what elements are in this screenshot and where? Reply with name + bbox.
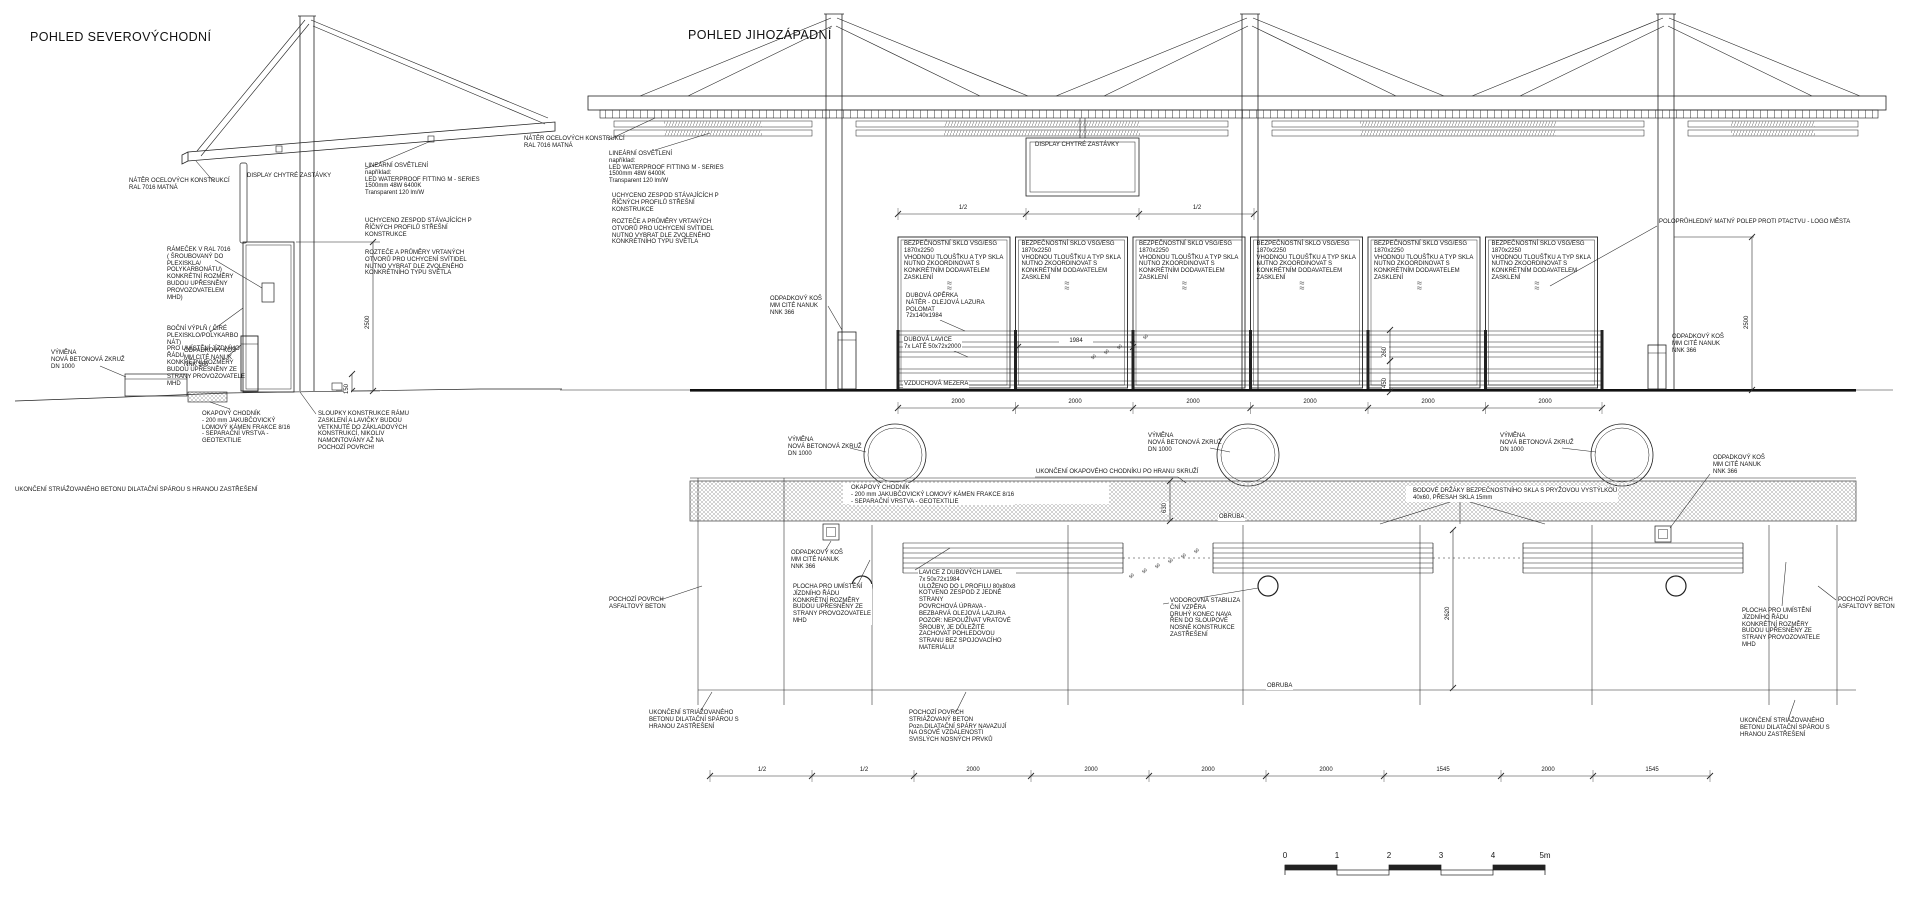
glass-symbol-icon: ≈ ≈: [1300, 281, 1305, 291]
annotation-label: 50: [1128, 572, 1135, 579]
glass-panel-note: BEZPEČNOSTNÍ SKLO VSG/ESG 1870x2250 VHOD…: [904, 241, 1004, 282]
annotation-label: 50: [1103, 348, 1110, 355]
annotation-label: 50: [1142, 333, 1149, 340]
dimension-label: 2000: [1191, 767, 1225, 774]
dimension-label: 2620: [1445, 606, 1452, 621]
scale-bar-tick: 2: [1381, 851, 1397, 860]
note-trash-bin-plan: ODPADKOVÝ KOŠ MM CITÉ NANUK NNK 366: [790, 550, 844, 570]
glass-panel-note: BEZPEČNOSTNÍ SKLO VSG/ESG 1870x2250 VHOD…: [1139, 241, 1239, 282]
view-title-southwest: POHLED JIHOZÁPADNÍ: [688, 28, 832, 42]
dimension-label: 2500: [365, 315, 372, 330]
note-smart-display-ne: DISPLAY CHYTRÉ ZASTÁVKY: [247, 173, 331, 180]
blueprint-canvas: POHLED SEVEROVÝCHODNÍ POHLED JIHOZÁPADNÍ: [0, 0, 1920, 905]
annotation-label: 50: [1167, 557, 1174, 564]
dimension-label: 2000: [1411, 399, 1445, 406]
note-concrete-edge-sw-right: UKONČENÍ STRIÁŽOVANÉHO BETONU DILATAČNÍ …: [1740, 718, 1830, 738]
glass-panel-note: BEZPEČNOSTNÍ SKLO VSG/ESG 1870x2250 VHOD…: [1022, 241, 1122, 282]
dimension-label: 1/2: [847, 767, 881, 774]
annotation-label: 50: [1129, 338, 1136, 345]
dimension-label: 1/2: [745, 767, 779, 774]
note-concrete-ring-ne: VÝMĚNA NOVÁ BETONOVÁ ZKRUŽ DN 1000: [51, 350, 125, 370]
note-asphalt-right: POCHOZÍ POVRCH ASFALTOVÝ BETON: [1838, 597, 1895, 611]
annotation-layer: NÁTĚR OCELOVÝCH KONSTRUKCÍ RAL 7016 MATN…: [0, 0, 1920, 905]
note-walk-end: UKONČENÍ OKAPOVÉHO CHODNÍKU PO HRANU SKR…: [1035, 469, 1199, 476]
glass-symbol-icon: ≈ ≈: [1535, 281, 1540, 291]
dimension-label: 2000: [1058, 399, 1092, 406]
note-fixing-sw: UCHYCENO ZESPOD STÁVAJÍCÍCH P ŘÍČNÝCH PR…: [612, 193, 719, 213]
glass-symbol-icon: ≈ ≈: [1182, 281, 1187, 291]
note-steel-paint-ne: NÁTĚR OCELOVÝCH KONSTRUKCÍ RAL 7016 MATN…: [129, 178, 230, 192]
dimension-label: 2000: [1309, 767, 1343, 774]
note-smart-display-sw: DISPLAY CHYTRÉ ZASTÁVKY: [1035, 142, 1119, 149]
glass-symbol-icon: ≈ ≈: [1065, 281, 1070, 291]
note-drill-holes-ne: ROZTEČE A PRŮMĚRY VRTANÝCH OTVORŮ PRO UC…: [365, 250, 467, 277]
note-drip-walk-ne: OKAPOVÝ CHODNÍK - 200 mm JAKUBČOVICKÝ LO…: [202, 411, 290, 445]
glass-panel-note: BEZPEČNOSTNÍ SKLO VSG/ESG 1870x2250 VHOD…: [1374, 241, 1474, 282]
note-timetable-right: PLOCHA PRO UMÍSTĚNÍ JÍZDNÍHO ŘÁDU KONKRÉ…: [1742, 608, 1820, 649]
dimension-label: 1984: [1059, 338, 1093, 345]
note-linear-light-ne: LINEÁRNÍ OSVĚTLENÍ například: LED WATERP…: [365, 163, 480, 197]
note-striated-concrete: POCHOZÍ POVRCH STRIÁŽOVANÝ BETON Pozn.DI…: [909, 710, 1006, 744]
note-timetable-left: PLOCHA PRO UMÍSTĚNÍ JÍZDNÍHO ŘÁDU KONKRÉ…: [792, 584, 872, 625]
note-curb-1: OBRUBA: [1218, 514, 1245, 521]
note-drill-holes-sw: ROZTEČE A PRŮMĚRY VRTANÝCH OTVORŮ PRO UC…: [612, 219, 714, 246]
note-curb-2: OBRUBA: [1266, 683, 1293, 690]
scale-bar-tick: 5m: [1537, 851, 1553, 860]
scale-bar-tick: 4: [1485, 851, 1501, 860]
dimension-label: 2000: [941, 399, 975, 406]
note-frame-ne: RÁMEČEK V RAL 7016 ( ŠROUBOVANÝ DO PLEXI…: [167, 247, 234, 302]
dimension-label: 1/2: [1180, 205, 1214, 212]
dimension-label: 2000: [1074, 767, 1108, 774]
note-point-holders: BODOVÉ DRŽÁKY BEZPEČNOSTNÍHO SKLA S PRYŽ…: [1412, 488, 1618, 502]
dimension-label: 2000: [1176, 399, 1210, 406]
annotation-label: 50: [1180, 552, 1187, 559]
glass-panel-note: BEZPEČNOSTNÍ SKLO VSG/ESG 1870x2250 VHOD…: [1492, 241, 1592, 282]
note-steel-paint-sw: NÁTĚR OCELOVÝCH KONSTRUKCÍ RAL 7016 MATN…: [524, 136, 625, 150]
dimension-label: 1545: [1635, 767, 1669, 774]
dimension-label: 150: [344, 383, 351, 395]
glass-panel-note: BEZPEČNOSTNÍ SKLO VSG/ESG 1870x2250 VHOD…: [1257, 241, 1357, 282]
annotation-label: 50: [1116, 343, 1123, 350]
note-trash-bin-plan-right: ODPADKOVÝ KOŠ MM CITÉ NANUK NNK 366: [1712, 455, 1766, 475]
note-oak-slats: LAVICE Z DUBOVÝCH LAMEL 7x 50x72x1984 UL…: [918, 570, 1016, 652]
glass-symbol-icon: ≈ ≈: [947, 281, 952, 291]
scale-bar-tick: 0: [1277, 851, 1293, 860]
note-fixing-ne: UCHYCENO ZESPOD STÁVAJÍCÍCH P ŘÍČNÝCH PR…: [365, 218, 472, 238]
annotation-label: 50: [1154, 562, 1161, 569]
dimension-label: 2000: [1293, 399, 1327, 406]
view-title-northeast: POHLED SEVEROVÝCHODNÍ: [30, 30, 211, 44]
note-concrete-edge-sw-left: UKONČENÍ STRIÁŽOVANÉHO BETONU DILATAČNÍ …: [649, 710, 739, 730]
note-oak-bench: DUBOVÁ LAVICE 7x LATĚ 50x72x2000: [903, 337, 962, 351]
dimension-label: 1545: [1426, 767, 1460, 774]
dimension-label: 2000: [956, 767, 990, 774]
note-horizontal-brace: VODOROVNÁ STABILIZA ČNÍ VZPĚRA DRUHÝ KON…: [1169, 598, 1241, 639]
note-ring-1: VÝMĚNA NOVÁ BETONOVÁ ZKRUŽ DN 1000: [788, 437, 862, 457]
dimension-label: 630: [1162, 502, 1169, 514]
note-asphalt-left: POCHOZÍ POVRCH ASFALTOVÝ BETON: [609, 597, 666, 611]
note-linear-light-sw: LINEÁRNÍ OSVĚTLENÍ například: LED WATERP…: [609, 151, 724, 185]
note-concrete-edge-ne: UKONČENÍ STRIÁŽOVANÉHO BETONU DILATAČNÍ …: [15, 487, 258, 494]
note-ring-3: VÝMĚNA NOVÁ BETONOVÁ ZKRUŽ DN 1000: [1500, 433, 1574, 453]
note-ring-2: VÝMĚNA NOVÁ BETONOVÁ ZKRUŽ DN 1000: [1148, 433, 1222, 453]
annotation-label: 50: [1193, 547, 1200, 554]
note-trash-bin-ne: ODPADKOVÝ KOŠ MM CITÉ NANUK NNK 366: [184, 348, 236, 368]
annotation-label: 50: [1090, 353, 1097, 360]
note-trash-bin-sw-right: ODPADKOVÝ KOŠ MM CITÉ NANUK NNK 366: [1672, 334, 1724, 354]
annotation-label: 50: [1141, 567, 1148, 574]
scale-bar-tick: 1: [1329, 851, 1345, 860]
glass-symbol-icon: ≈ ≈: [1417, 281, 1422, 291]
dimension-label: 2500: [1744, 315, 1751, 330]
note-trash-bin-sw-left: ODPADKOVÝ KOŠ MM CITÉ NANUK NNK 366: [770, 296, 822, 316]
note-drip-walk-sw: OKAPOVÝ CHODNÍK - 200 mm JAKUBČOVICKÝ LO…: [850, 485, 1015, 505]
note-bird-foil: POLOPRŮHLEDNÝ MATNÝ POLEP PROTI PTACTVU …: [1659, 219, 1850, 226]
dimension-label: 2000: [1531, 767, 1565, 774]
note-posts-ne: SLOUPKY KONSTRUKCE RÁMU ZASKLENÍ A LAVIČ…: [318, 411, 409, 452]
dimension-label: 2000: [1528, 399, 1562, 406]
dimension-label: 450: [1382, 377, 1389, 389]
scale-bar-tick: 3: [1433, 851, 1449, 860]
note-oak-backrest: DUBOVÁ OPĚRKA NÁTĚR - OLEJOVÁ LAZURA POL…: [905, 293, 986, 320]
dimension-label: 260: [1382, 346, 1389, 358]
dimension-label: 1/2: [946, 205, 980, 212]
note-air-gap: VZDUCHOVÁ MEZERA: [903, 381, 969, 388]
